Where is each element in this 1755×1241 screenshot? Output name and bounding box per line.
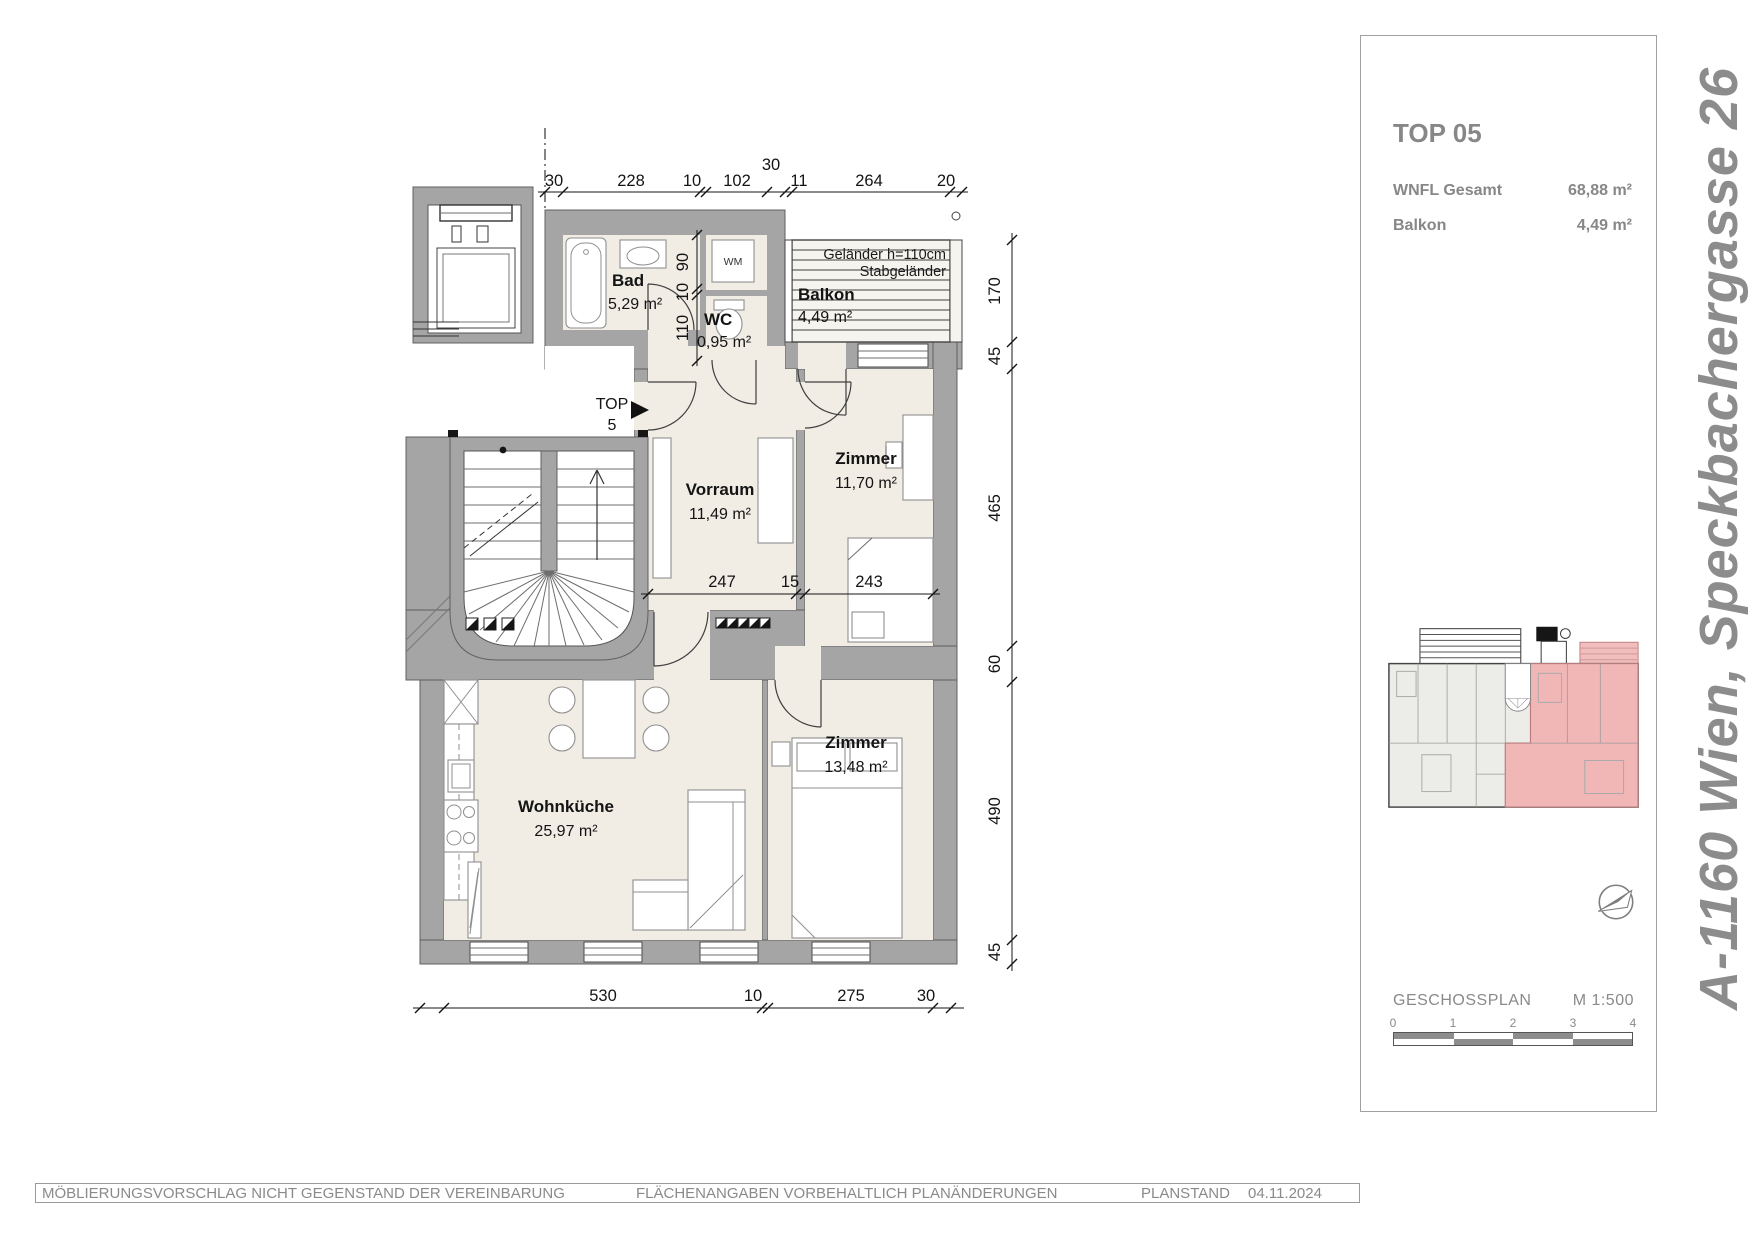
svg-text:490: 490: [986, 797, 1004, 825]
svg-text:TOP: TOP: [596, 396, 629, 413]
svg-text:243: 243: [855, 573, 883, 591]
svg-text:11: 11: [790, 172, 807, 190]
room-label-bad: Bad: [612, 271, 644, 290]
svg-text:264: 264: [855, 172, 883, 190]
footer-planstand-date: 04.11.2024: [1248, 1185, 1322, 1202]
footer-disclaimer-1: MÖBLIERUNGSVORSCHLAG NICHT GEGENSTAND DE…: [42, 1185, 565, 1202]
scale-tick: 3: [1570, 1016, 1577, 1030]
room-area-bad: 5,29 m²: [608, 296, 663, 313]
svg-text:10: 10: [683, 172, 701, 190]
svg-text:10: 10: [674, 283, 692, 301]
key-plan-balcony-hatched: [1420, 629, 1521, 664]
scale-tick: 1: [1450, 1016, 1457, 1030]
room-label-vorraum: Vorraum: [686, 480, 755, 499]
stat-value: 68,88 m²: [1568, 182, 1632, 200]
info-panel: TOP 05 WNFL Gesamt 68,88 m² Balkon 4,49 …: [1360, 35, 1657, 1112]
room-label-zimmer-2: Zimmer: [825, 733, 887, 752]
key-plan: [1383, 619, 1645, 842]
plan-type-label: GESCHOSSPLAN: [1393, 992, 1531, 1010]
svg-text:10: 10: [744, 987, 762, 1005]
scale-label: M 1:500: [1573, 992, 1634, 1010]
scale-tick-labels: 0 1 2 3 4: [1393, 1016, 1633, 1030]
scale-tick: 0: [1390, 1016, 1397, 1030]
svg-text:45: 45: [986, 347, 1004, 365]
svg-text:170: 170: [986, 277, 1004, 305]
room-area-vorraum: 11,49 m²: [689, 506, 752, 523]
stat-row-wnfl: WNFL Gesamt 68,88 m²: [1393, 182, 1632, 204]
elevator: [413, 187, 533, 343]
svg-text:102: 102: [723, 172, 751, 190]
railing-note-line1: Geländer h=110cm: [823, 247, 946, 263]
room-area-wohnkueche: 25,97 m²: [534, 823, 598, 840]
svg-text:15: 15: [781, 573, 799, 591]
svg-text:30: 30: [917, 987, 935, 1005]
room-area-zimmer-2: 13,48 m²: [824, 759, 888, 776]
svg-text:60: 60: [986, 655, 1004, 673]
footer-disclaimer-2: FLÄCHENANGABEN VORBEHALTLICH PLANÄNDERUN…: [636, 1185, 1057, 1202]
key-plan-stair: [1505, 664, 1530, 712]
room-label-zimmer-1: Zimmer: [835, 449, 897, 468]
svg-text:30: 30: [545, 172, 563, 190]
svg-text:465: 465: [986, 494, 1004, 522]
room-area-balkon: 4,49 m²: [798, 309, 853, 326]
footer-planstand-label: PLANSTAND: [1141, 1185, 1230, 1202]
floor-plan-svg: Geländer h=110cm Stabgeländer WM: [0, 0, 1360, 1241]
project-address: A-1160 Wien, Speckbachergasse 26: [1688, 67, 1750, 1010]
room-label-balkon: Balkon: [798, 285, 855, 304]
room-area-zimmer-1: 11,70 m²: [835, 475, 898, 492]
floor-plan-sheet: Geländer h=110cm Stabgeländer WM: [0, 0, 1755, 1241]
north-arrow-icon: [1593, 879, 1639, 925]
dimension-right: 170 45 465 60 490 45: [986, 233, 1017, 971]
room-label-wc: WC: [704, 310, 732, 329]
railing-note-line2: Stabgeländer: [860, 264, 946, 280]
svg-text:30: 30: [762, 156, 780, 174]
svg-text:20: 20: [937, 172, 955, 190]
scale-bar: [1393, 1032, 1633, 1046]
stair-landing: [545, 346, 634, 437]
svg-text:228: 228: [617, 172, 645, 190]
scale-tick: 4: [1630, 1016, 1637, 1030]
svg-text:45: 45: [986, 943, 1004, 961]
key-plan-balcony-pink: [1580, 642, 1638, 663]
washing-machine-label: WM: [724, 256, 743, 268]
stat-label: Balkon: [1393, 217, 1446, 235]
unit-title: TOP 05: [1393, 118, 1482, 149]
scale-tick: 2: [1510, 1016, 1517, 1030]
svg-text:247: 247: [708, 573, 736, 591]
room-label-wohnkueche: Wohnküche: [518, 797, 614, 816]
stat-value: 4,49 m²: [1577, 217, 1632, 235]
svg-text:90: 90: [674, 253, 692, 271]
svg-text:530: 530: [589, 987, 617, 1005]
stat-label: WNFL Gesamt: [1393, 182, 1502, 200]
svg-text:275: 275: [837, 987, 865, 1005]
svg-text:110: 110: [674, 315, 692, 341]
dimension-top: 30 228 10 102 30 11 264 20: [538, 156, 968, 197]
room-area-wc: 0,95 m²: [697, 334, 752, 351]
footer-bar: MÖBLIERUNGSVORSCHLAG NICHT GEGENSTAND DE…: [35, 1183, 1360, 1203]
stat-row-balkon: Balkon 4,49 m²: [1393, 217, 1632, 239]
dimension-bottom: 530 10 275 30: [413, 987, 964, 1013]
svg-text:5: 5: [608, 417, 617, 434]
